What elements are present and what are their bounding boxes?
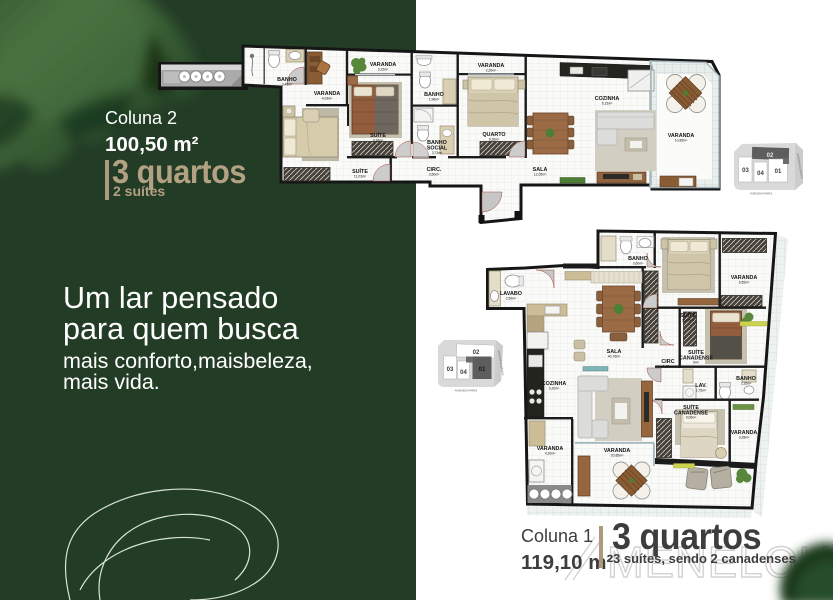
svg-text:AVENIDA PARIS: AVENIDA PARIS <box>455 389 477 393</box>
svg-text:3,50m²: 3,50m² <box>429 173 440 177</box>
svg-text:AVENIDA PARIS: AVENIDA PARIS <box>750 192 772 196</box>
svg-text:2,20m²: 2,20m² <box>486 69 497 73</box>
svg-text:04: 04 <box>460 370 467 376</box>
svg-text:4,03m²: 4,03m² <box>322 97 333 101</box>
svg-text:02: 02 <box>473 350 480 356</box>
svg-text:03: 03 <box>447 367 454 373</box>
svg-text:02: 02 <box>767 153 774 159</box>
svg-text:9m²: 9m² <box>693 361 700 365</box>
svg-text:11,03m²: 11,03m² <box>354 175 367 179</box>
svg-text:1,75m²: 1,75m² <box>696 389 707 393</box>
svg-text:3,15m²: 3,15m² <box>378 68 389 72</box>
svg-text:11,50m²: 11,50m² <box>682 319 695 323</box>
svg-text:20,85m²: 20,85m² <box>611 454 624 458</box>
svg-text:12,05m²: 12,05m² <box>534 173 547 177</box>
svg-text:2,50m²: 2,50m² <box>506 297 517 301</box>
svg-text:1,45m²: 1,45m² <box>663 365 674 369</box>
svg-text:03: 03 <box>742 168 749 174</box>
svg-text:9,36m²: 9,36m² <box>489 138 500 142</box>
svg-text:9,06m²: 9,06m² <box>686 416 697 420</box>
svg-text:3,60m²: 3,60m² <box>633 262 644 266</box>
svg-text:01: 01 <box>775 169 782 175</box>
svg-text:2,35m²: 2,35m² <box>741 382 752 386</box>
svg-text:1,96m²: 1,96m² <box>429 98 440 102</box>
svg-text:6,15m²: 6,15m² <box>602 102 613 106</box>
svg-text:3,73m²: 3,73m² <box>432 151 443 155</box>
svg-text:10,85m²: 10,85m² <box>675 139 688 143</box>
svg-text:3,28m²: 3,28m² <box>739 436 750 440</box>
svg-text:9,36m²: 9,36m² <box>373 139 384 143</box>
svg-text:3,48m²: 3,48m² <box>282 83 293 87</box>
svg-text:6,55m²: 6,55m² <box>739 281 750 285</box>
svg-text:9,20m²: 9,20m² <box>549 387 560 391</box>
svg-text:04: 04 <box>757 171 764 177</box>
svg-text:4,26m²: 4,26m² <box>545 452 556 456</box>
svg-text:40,76m²: 40,76m² <box>608 355 621 359</box>
svg-text:01: 01 <box>479 367 486 373</box>
